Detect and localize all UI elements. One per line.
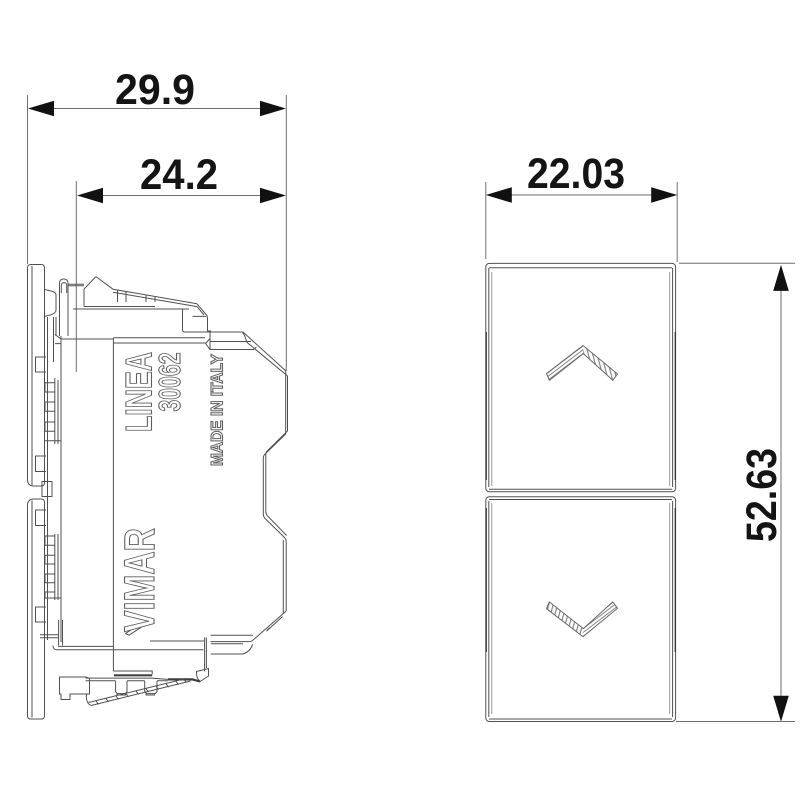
svg-text:29.9: 29.9 xyxy=(115,66,195,114)
svg-text:VIMAR: VIMAR xyxy=(116,528,164,632)
svg-text:MADE IN ITALY: MADE IN ITALY xyxy=(208,353,227,466)
svg-text:30062: 30062 xyxy=(152,353,187,412)
svg-text:24.2: 24.2 xyxy=(140,151,218,199)
svg-text:22.03: 22.03 xyxy=(527,150,625,198)
svg-text:52.63: 52.63 xyxy=(738,448,786,542)
